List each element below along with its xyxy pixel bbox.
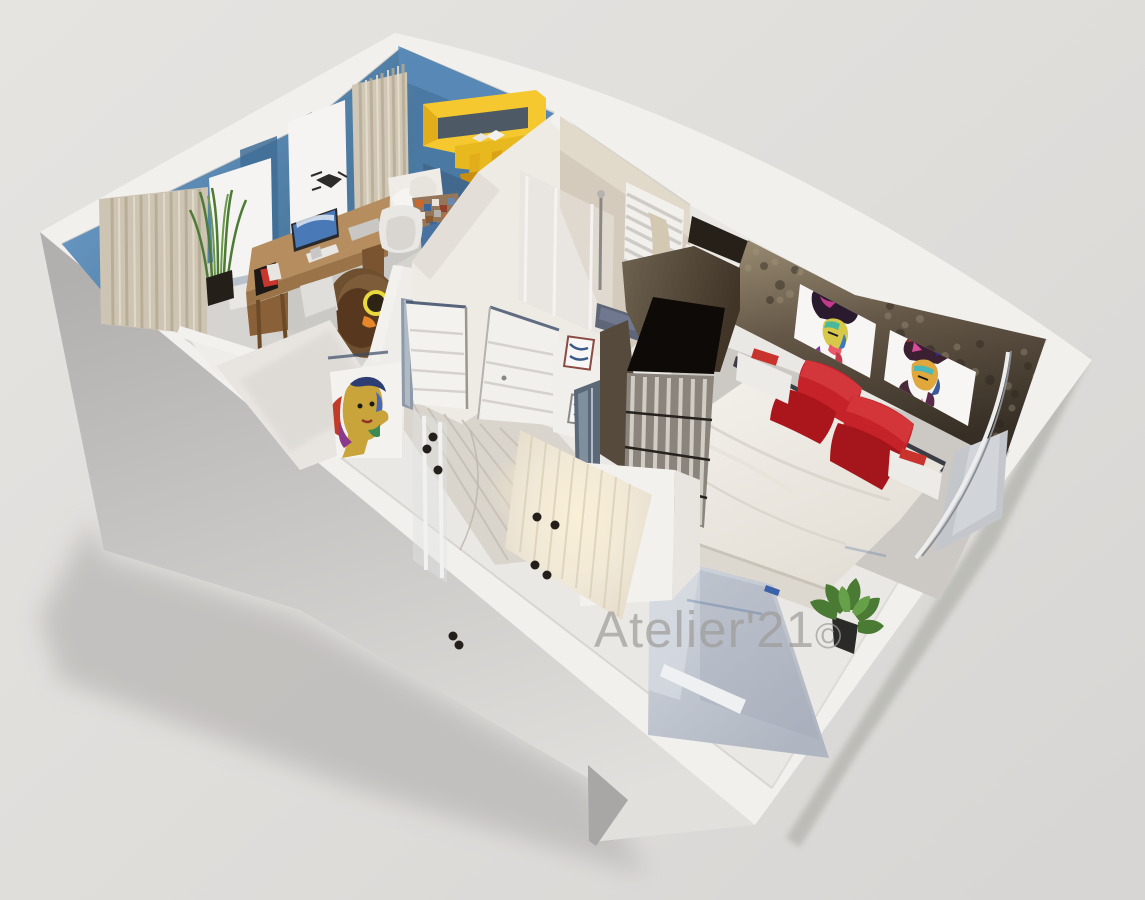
svg-text:Atelier'21©: Atelier'21© [594, 601, 843, 658]
